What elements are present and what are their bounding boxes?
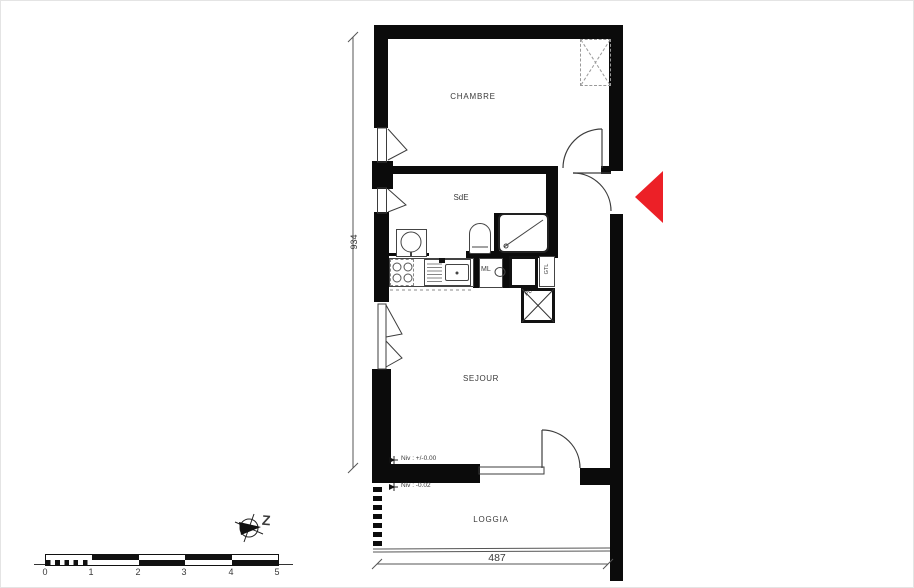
wall-left-chambre: [374, 25, 388, 128]
appliance-box: [509, 256, 538, 288]
scale-tick-label: 5: [272, 567, 282, 577]
scale-bar-segment: [92, 555, 139, 560]
door-loggia: [542, 430, 580, 468]
room-label-sde: SdE: [441, 193, 481, 202]
room-label-chambre: CHAMBRE: [433, 92, 513, 101]
wall-bottom-right-block: [580, 468, 623, 485]
window-sde: [378, 188, 407, 213]
room-label-loggia: LOGGIA: [451, 515, 531, 524]
door-chambre: [563, 129, 602, 168]
wall-right-top: [609, 25, 623, 171]
wall-right-mid: [610, 214, 623, 469]
sink-tap: [439, 258, 445, 263]
compass-north-letter: Z: [261, 512, 271, 529]
floor-plan-canvas: CHAMBRE SdE SEJOUR LOGGIA ML GTL PL 934 …: [0, 0, 914, 588]
wall-left-kitchen: [374, 212, 389, 302]
scale-bar-segment: [185, 555, 232, 560]
level-marker-icon-loggia: [389, 483, 398, 491]
fixture-label-gtl: GTL: [544, 259, 550, 279]
cooktop: [390, 259, 414, 286]
plan-linework: [1, 1, 914, 588]
scale-bar-segment: [139, 560, 185, 565]
scale-tick-label: 0: [40, 567, 50, 577]
fixture-label-washing-machine: ML: [481, 266, 491, 273]
north-compass-icon: [235, 514, 263, 542]
scale-tick-label: 1: [86, 567, 96, 577]
washing-machine-box: [479, 258, 503, 288]
wall-left-sejour: [372, 369, 391, 468]
door-entrance: [573, 173, 611, 211]
scale-bar-segment-checker: [46, 560, 92, 565]
wall-chambre-stub: [601, 166, 611, 174]
entrance-arrow-icon: [635, 171, 663, 223]
scale-bar-segment: [232, 560, 278, 565]
room-label-sejour: SEJOUR: [446, 374, 516, 383]
scale-tick-label: 3: [179, 567, 189, 577]
wall-top: [374, 25, 623, 39]
wall-bottom-sejour: [372, 464, 480, 483]
wall-chambre-sde: [388, 166, 553, 174]
dimension-value-vertical: 934: [349, 226, 359, 258]
level-label-main: Niv : +/-0.00: [401, 455, 436, 462]
window-sejour-side: [378, 304, 402, 369]
scale-tick-label: 2: [133, 567, 143, 577]
washbasin: [396, 229, 427, 257]
toilet: [469, 223, 491, 254]
wall-right-loggia: [610, 485, 623, 581]
scale-bar: [45, 554, 279, 566]
shower: [498, 213, 549, 253]
window-chambre: [378, 128, 408, 162]
level-label-loggia: Niv : -0.02: [401, 482, 431, 489]
window-sejour-bottom: [479, 467, 544, 474]
sink-basin: [445, 264, 469, 281]
wardrobe: [580, 39, 611, 86]
scale-tick-label: 4: [226, 567, 236, 577]
wall-loggia-dashed: [373, 487, 382, 549]
dimension-value-horizontal: 487: [472, 552, 522, 564]
